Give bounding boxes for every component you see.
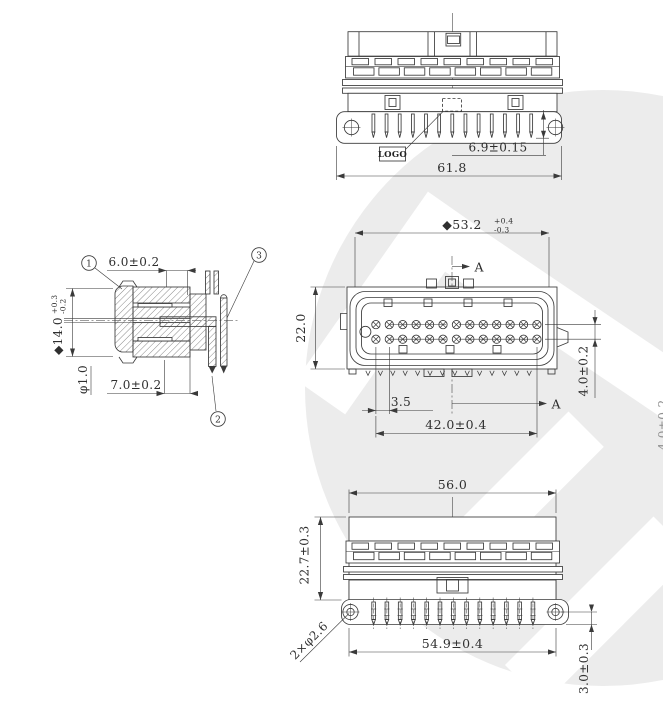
- side-top-terminal: [206, 271, 211, 294]
- dim-shroud-tol-plus: +0.4: [494, 217, 513, 226]
- side-bent-terminal: [160, 317, 216, 327]
- drawing-canvas: LOGO 6.9±0.15 61.8: [0, 0, 663, 722]
- dim-mounting-holes: 2×φ2.6: [287, 614, 349, 663]
- dim-pin-diameter: φ1.0: [76, 365, 91, 395]
- dim-pin-pitch-text: 3.5: [391, 395, 411, 409]
- dim-body-height: 22.7±0.3: [298, 517, 347, 600]
- dim-pin-span-text: 42.0±0.4: [425, 417, 486, 432]
- side-rear-terminal: [221, 298, 228, 366]
- dim-row-spacing-text: 4.0±0.2: [577, 345, 591, 396]
- side-top-wall: [133, 287, 190, 303]
- rear-rib-band: [346, 57, 560, 79]
- dim-body-height-text: 22.7±0.3: [298, 525, 312, 584]
- logo-label: LOGO: [378, 150, 408, 160]
- dim-nose-length-text: 6.0±0.2: [108, 255, 159, 269]
- dim-pin-protrusion-text: 6.9±0.15: [468, 141, 527, 155]
- dim-seal-tol-minus: -0.2: [59, 299, 68, 314]
- dim-pin-diameter-text: φ1.0: [76, 365, 90, 394]
- clipped-edge-dimension-text: 4.0±0.2: [656, 399, 663, 450]
- dim-hole-span-text: 54.9±0.4: [422, 636, 483, 651]
- dim-body-length-text: 7.0±0.2: [110, 378, 161, 392]
- bottom-rib-band: [346, 541, 560, 563]
- side-seal-cap: [115, 286, 133, 352]
- balloon-1-number: 1: [86, 260, 92, 270]
- drawing-sheet: LOGO 6.9±0.15 61.8: [0, 0, 663, 722]
- side-bottom-wall: [133, 341, 190, 357]
- dim-pin-standoff-text: 3.0±0.3: [577, 643, 591, 694]
- dim-bottom-overall-width-text: 56.0: [438, 477, 467, 492]
- dim-seal-diameter-text: ◆14.0: [51, 317, 65, 355]
- dim-shroud-tol-minus: -0.3: [494, 226, 509, 235]
- balloon-2-number: 2: [215, 416, 221, 426]
- section-label-bottom: A: [551, 397, 562, 412]
- clipped-edge-dimension: 4.0±0.2: [656, 399, 663, 450]
- dim-mounting-holes-text: 2×φ2.6: [287, 619, 331, 663]
- balloon-3: 3: [227, 248, 266, 318]
- dim-shroud-width-text: ◆53.2: [442, 217, 481, 232]
- dim-rear-overall-width-text: 61.8: [437, 160, 466, 175]
- dim-front-height-text: 22.0: [293, 313, 308, 342]
- balloon-3-number: 3: [256, 252, 262, 262]
- dim-body-length: 7.0±0.2: [107, 352, 198, 396]
- section-label-top: A: [474, 260, 485, 275]
- side-section-view: 1 3 2 6.0±0.2 ◆14.0: [50, 248, 266, 427]
- rear-flange: [337, 112, 562, 144]
- balloon-2: 2: [211, 376, 226, 426]
